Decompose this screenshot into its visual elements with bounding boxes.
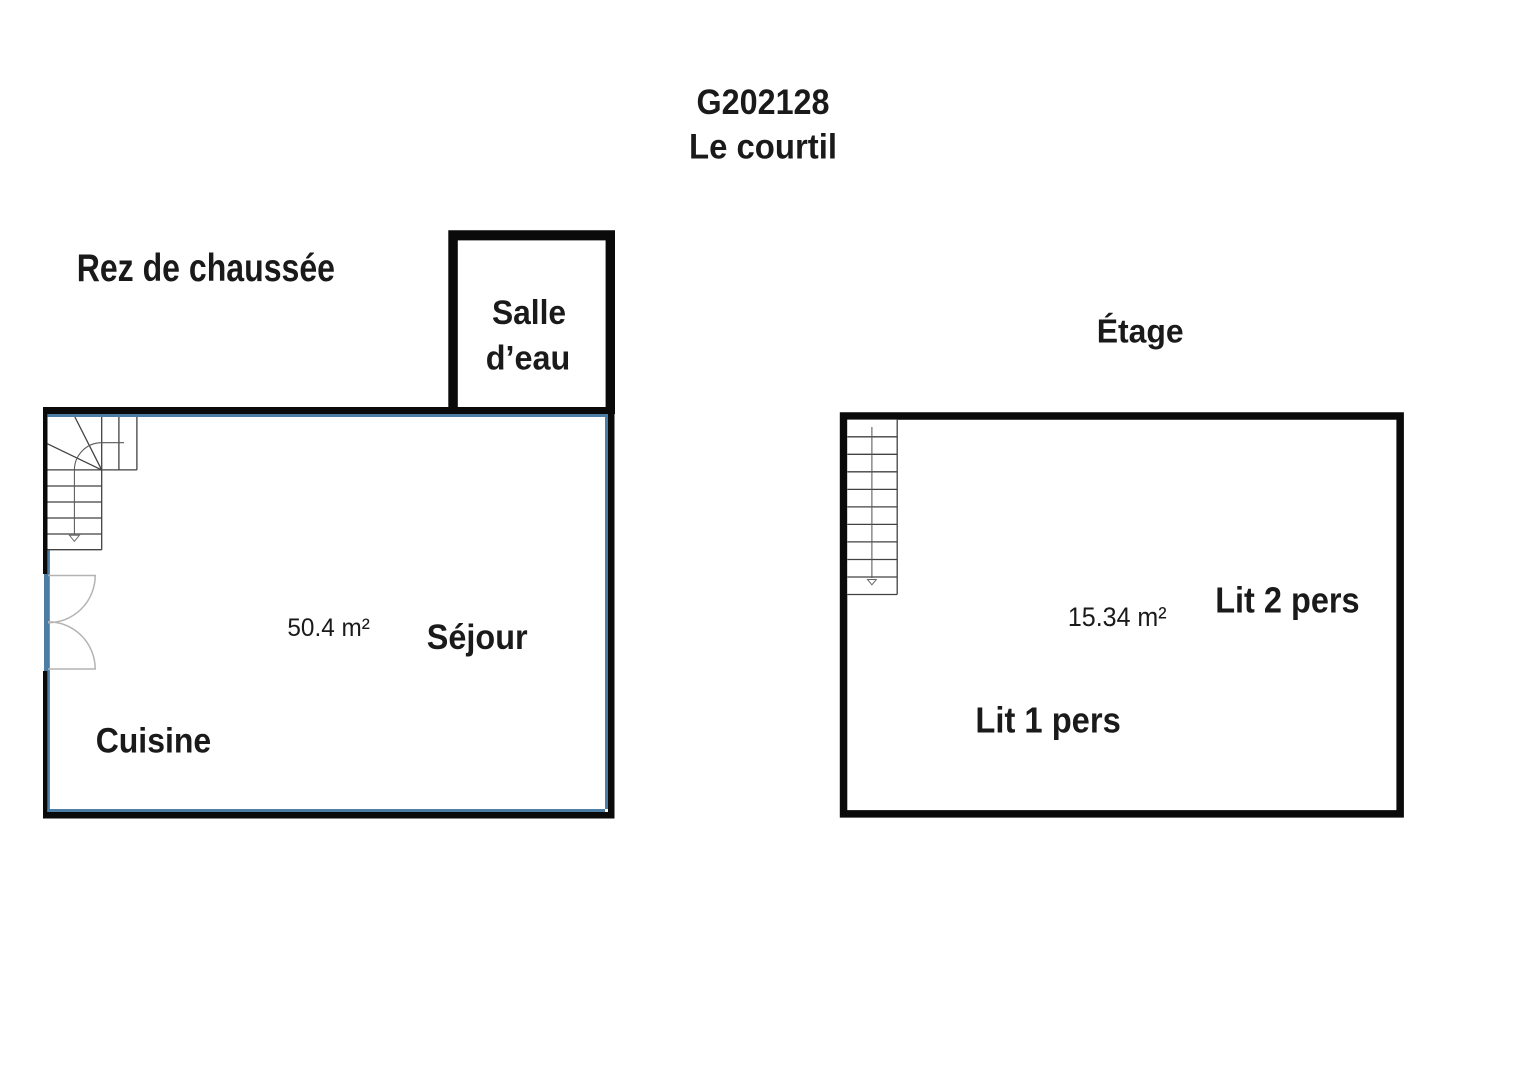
svg-text:Lit 2 pers: Lit 2 pers [1215,580,1359,621]
svg-text:15.34 m²: 15.34 m² [1068,602,1167,632]
svg-text:Le courtil: Le courtil [689,128,837,167]
svg-text:Lit 1 pers: Lit 1 pers [975,699,1120,740]
svg-text:Étage: Étage [1097,312,1184,349]
svg-text:G202128: G202128 [697,83,830,122]
svg-text:Cuisine: Cuisine [96,720,212,760]
svg-text:d’eau: d’eau [486,340,571,378]
svg-text:50.4 m²: 50.4 m² [287,614,370,642]
svg-text:Salle: Salle [492,294,566,332]
svg-text:Rez de chaussée: Rez de chaussée [77,247,335,290]
svg-text:Séjour: Séjour [427,618,528,657]
